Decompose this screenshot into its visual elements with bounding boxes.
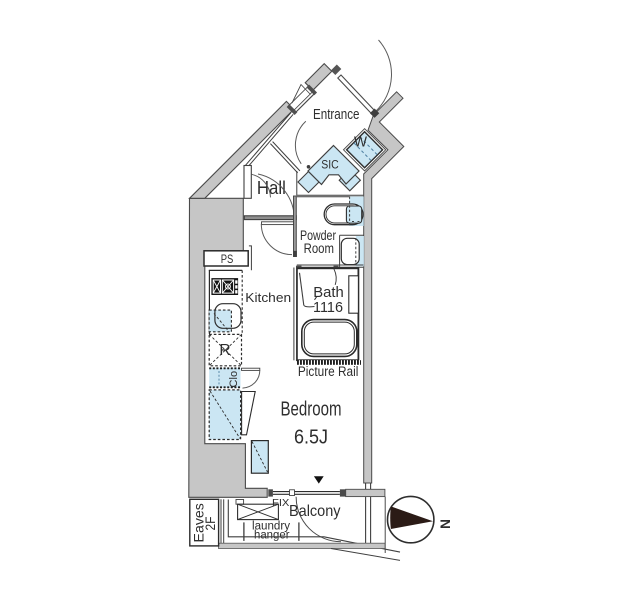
svg-text:W: W xyxy=(354,134,368,151)
svg-text:Clo: Clo xyxy=(228,371,240,388)
svg-text:R: R xyxy=(219,342,230,359)
svg-text:2F: 2F xyxy=(202,517,218,531)
svg-text:Bedroom: Bedroom xyxy=(281,399,342,421)
svg-text:6.5J: 6.5J xyxy=(294,427,328,449)
svg-text:Balcony: Balcony xyxy=(289,503,341,520)
svg-text:Kitchen: Kitchen xyxy=(245,290,291,305)
svg-text:Picture Rail: Picture Rail xyxy=(298,364,359,379)
svg-text:PS: PS xyxy=(221,252,234,266)
svg-text:N: N xyxy=(437,519,452,529)
svg-text:1116: 1116 xyxy=(313,299,343,316)
svg-text:Room: Room xyxy=(304,240,334,256)
svg-text:hanger: hanger xyxy=(254,530,290,542)
svg-text:SIC: SIC xyxy=(321,160,339,172)
svg-text:Entrance: Entrance xyxy=(313,107,360,123)
